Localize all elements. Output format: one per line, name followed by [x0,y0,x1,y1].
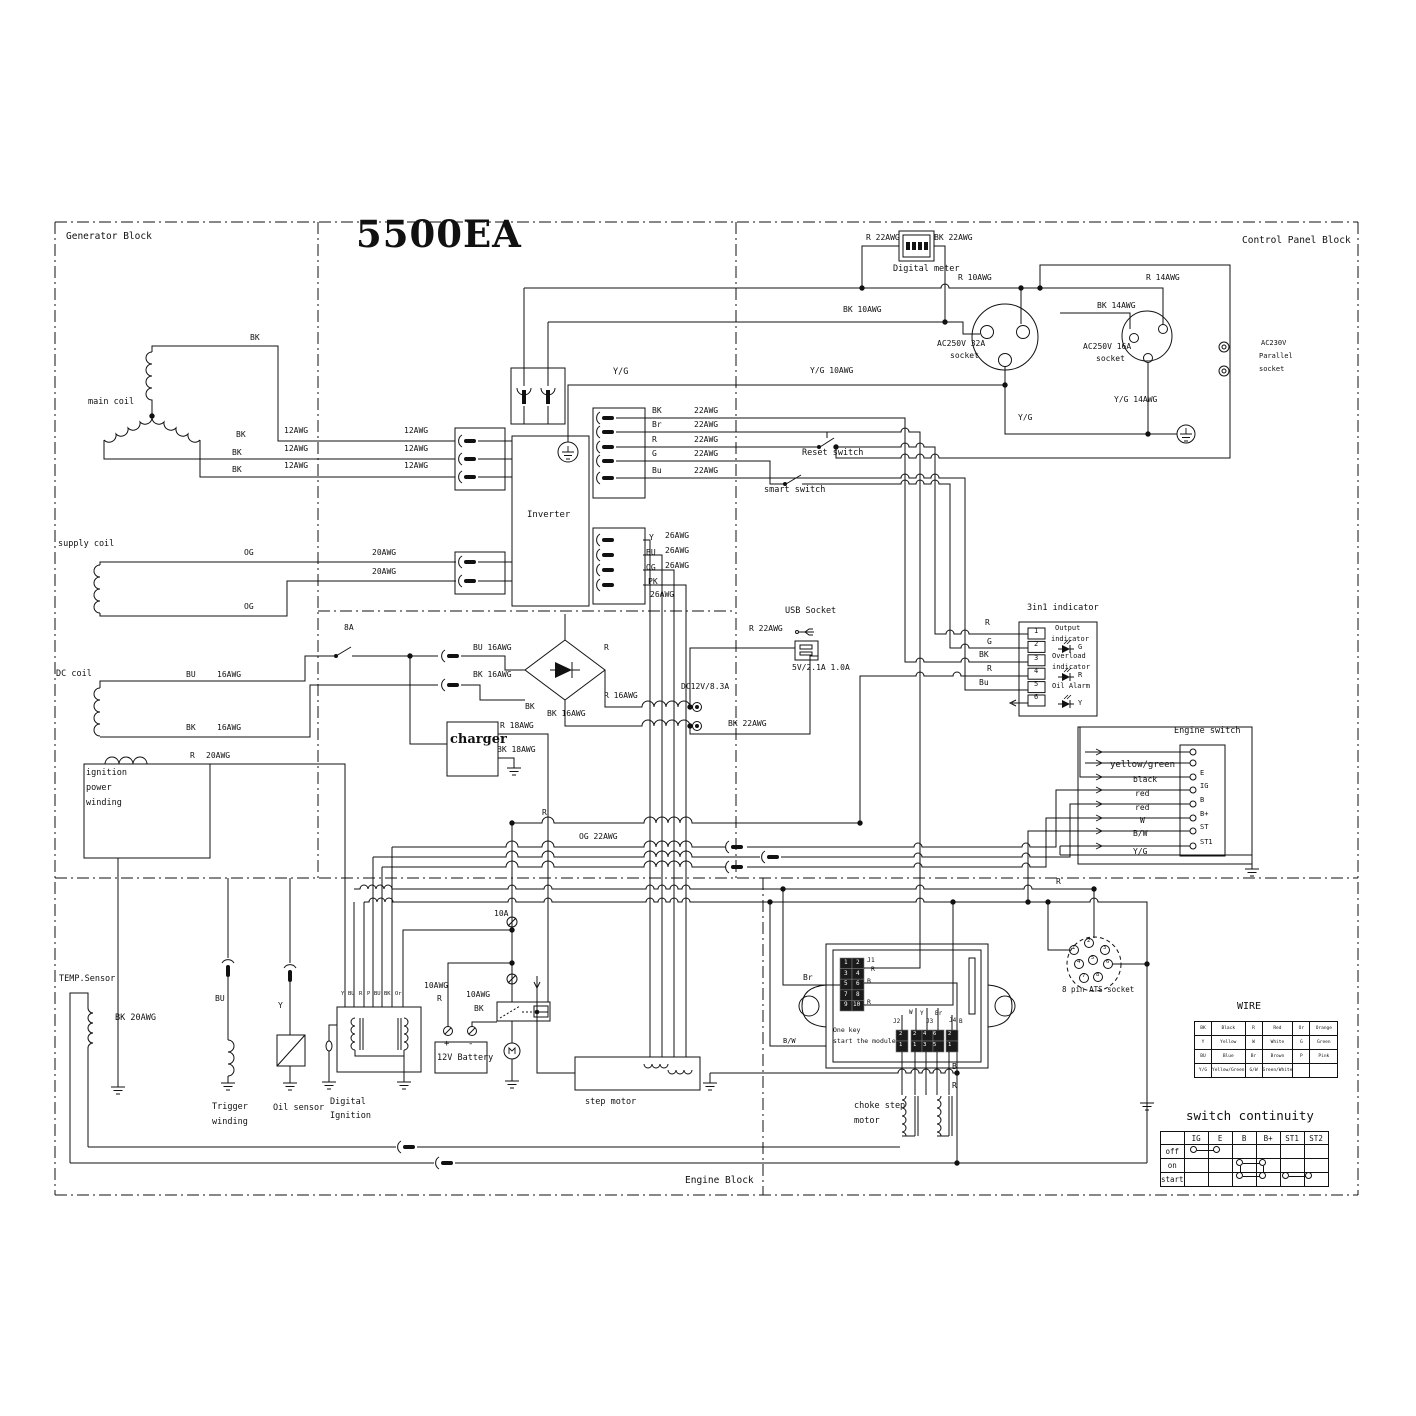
continuity-cell [1208,1173,1232,1187]
wire-label: Oil sensor [273,1104,324,1113]
wire-label: BU [646,549,656,557]
continuity-header-cell: ST2 [1304,1132,1328,1145]
wire-label: winding [86,799,122,808]
socket-16a [1122,311,1172,363]
wire-label: 10 [853,1002,860,1008]
wire-label: 12AWG [284,462,308,470]
wire-label: red [1135,804,1149,812]
wire-label: AC250V 16A [1083,343,1131,351]
wire-label: G [987,638,992,646]
wire-label: 5 [933,1043,936,1049]
wire-label: 3 [844,971,848,977]
wire-label: motor [854,1117,880,1126]
wire-label: 5 [1034,681,1038,688]
wire-label: smart switch [764,486,825,495]
socket-32a [972,304,1038,370]
wire-label: charger [450,733,507,746]
wire-label: main coil [88,398,134,407]
wire-label: Bu [979,679,989,687]
wire-label: 12AWG [284,427,308,435]
wire-label: BK [525,703,535,711]
parallel-socket [1219,342,1229,376]
wire-label: - [468,1040,473,1049]
wire-label: BK [474,1005,484,1013]
page-title: 5500EA [356,212,522,256]
wire-label: power [86,784,112,793]
continuity-cell: start [1161,1173,1185,1187]
wire-label: R [867,999,871,1006]
continuity-cell [1208,1159,1232,1173]
inverter [511,288,589,606]
wire-label: 12AWG [404,427,428,435]
wire-label: 7 [844,992,848,998]
wire-label: R [1078,672,1082,679]
continuity-cell [1304,1145,1328,1159]
wire-label: R [952,1082,957,1090]
wire-label: W [909,1010,913,1016]
wire-label: 20AWG [206,752,230,760]
wire-label: DC coil [56,670,92,679]
wire-label: Engine switch [1174,727,1241,736]
wire-label: BK [232,449,242,457]
wire-label: AC230V [1261,340,1286,347]
wire-table-cell: Y/G [1195,1064,1212,1078]
wire-label: OG [646,564,656,572]
wire-label: B [959,1019,963,1025]
wire-label: BK 14AWG [1097,302,1136,310]
wire-label: One key [833,1027,860,1034]
temp-sensor [70,993,93,1163]
wire-label: 20AWG [372,549,396,557]
wire-label: red [1135,790,1149,798]
wire-label: start the module [833,1038,896,1045]
wire-label: 22AWG [694,436,718,444]
continuity-header-cell: ST1 [1280,1132,1304,1145]
continuity-cell: off [1161,1145,1185,1159]
continuity-cell [1232,1145,1256,1159]
supply-coil [94,562,456,616]
wire-table-cell: P [1293,1050,1310,1064]
wire-label: 1 [844,960,848,966]
wire-label: R [985,619,990,627]
wire-label: 3 [923,1043,926,1049]
wire-label: 26AWG [665,562,689,570]
wire-label: 5 [844,981,848,987]
wire-label: black [1133,776,1157,784]
schematic-linework [0,0,1416,1416]
wire-label: 2 [1034,641,1038,648]
wire-table-cell: G [1293,1036,1310,1050]
wire-label: AC250V 32A [937,340,985,348]
continuity-table-body: IGEBB+ST1ST2offonstart [1161,1132,1329,1187]
wire-label: 6 [856,981,860,987]
wire-label: BK [186,724,196,732]
wire-label: 20AWG [372,568,396,576]
wire-label: 6 [933,1032,936,1038]
wire-label: R 22AWG [866,234,900,242]
wire-label: 3 [1034,655,1038,662]
wire-table-cell: Or [1293,1022,1310,1036]
continuity-vlink-line [1263,1166,1264,1173]
wire-label: 8A [344,624,354,632]
wire-label: BK 16AWG [473,671,512,679]
wire-label: OG [244,603,254,611]
digital-ignition [326,847,421,1077]
wire-label: R [437,995,442,1003]
wire-label: + [444,1040,449,1049]
wire-label: Y [649,534,654,542]
wire-label: BK [979,651,989,659]
wire-table-cell: Blue [1212,1050,1246,1064]
wire-label: 12AWG [404,462,428,470]
wire-label: choke step [854,1102,905,1111]
wire-label: socket [950,352,979,360]
wire-label: B/W [783,1038,796,1045]
wire-label: 1 [899,1043,902,1049]
wire-label: Y/G 14AWG [1114,396,1157,404]
wire-label: BK 18AWG [497,746,536,754]
wire-label: 16AWG [217,671,241,679]
wire-table-cell: White [1262,1036,1293,1050]
wire-label: G [1078,644,1082,651]
wire-label: Br [803,974,813,982]
wire-label: B/W [1133,830,1147,838]
wire-label: Reset switch [802,449,863,458]
continuity-vlink-line [1240,1166,1241,1173]
wire-label: 22AWG [694,467,718,475]
wire-label: PK [648,578,658,586]
wire-label: USB Socket [785,607,836,616]
wire-label: indicator [1051,636,1089,643]
wire-label: OG 22AWG [579,833,618,841]
wire-label: 12AWG [284,445,308,453]
wire-label: Digital meter [893,265,960,274]
wire-label: 26AWG [650,591,674,599]
engine-switch [1028,727,1252,902]
wire-label: R [604,644,609,652]
continuity-link-line [1243,1176,1260,1177]
wire-label: BK 10AWG [843,306,882,314]
wire-label: BK 22AWG [728,720,767,728]
wire-label: BK 22AWG [934,234,973,242]
step-motor [575,1057,700,1090]
wire-label: 12AWG [404,445,428,453]
wire-label: 22AWG [694,421,718,429]
wire-label: Y/G 10AWG [810,367,853,375]
reset-switch [616,432,834,449]
wire-label: ST1 [1200,839,1213,846]
continuity-cell [1280,1145,1304,1159]
continuity-contact [1213,1146,1220,1153]
wire-label: R 16AWG [604,692,638,700]
wire-label: Y [278,1002,283,1010]
continuity-cell [1184,1159,1208,1173]
wire-label: R [987,665,992,673]
continuity-cell: on [1161,1159,1185,1173]
wire-table-cell: R [1245,1022,1262,1036]
continuity-contact [1259,1172,1266,1179]
wire-label: B [952,1063,957,1071]
wire-table-body: BKBlackRRedOrOrangeYYellowWWhiteGGreenBU… [1195,1022,1338,1078]
wire-label: 3in1 indicator [1027,604,1099,613]
wire-label: 16AWG [217,724,241,732]
wiring-diagram: 5500EA Generator Block Control Panel Blo… [0,0,1416,1416]
wire-label: Y [1078,700,1082,707]
wire-table-cell: Black [1212,1022,1246,1036]
continuity-header-cell: IG [1184,1132,1208,1145]
wire-label: 4 [1034,668,1038,675]
wire-table-cell: G/W [1245,1064,1262,1078]
continuity-cell [1256,1145,1280,1159]
wire-label: winding [212,1118,248,1127]
continuity-link-line [1243,1163,1260,1164]
generator-block-label: Generator Block [66,231,152,242]
wire-label: J3 [926,1019,933,1025]
charger-box [447,722,498,776]
wire-table-cell [1310,1064,1338,1078]
wire-label: R [190,752,195,760]
wire-label: 1 [1072,946,1075,952]
wire-label: Br [935,1011,942,1017]
wire-label: socket [1096,355,1125,363]
control-panel-block-label: Control Panel Block [1242,235,1351,246]
wire-label: DC12V/8.3A [681,683,729,691]
starter-motor [504,1021,520,1076]
continuity-header-cell: E [1208,1132,1232,1145]
wire-table-cell: Red [1262,1022,1293,1036]
wire-table-title: WIRE [1237,1002,1261,1012]
wire-label: 9 [844,1002,848,1008]
wire-label: 8 pin ATS socket [1062,986,1134,994]
wire-label: Oil Alarm [1052,683,1090,690]
rectifier-bridge [525,614,605,700]
wire-label: 3 [1103,946,1106,952]
wire-label: Br [652,421,662,429]
wire-label: 2 [856,960,860,966]
wire-label: Y [920,1011,924,1017]
wire-label: 26AWG [665,547,689,555]
wire-label: 2 [948,1032,951,1038]
continuity-cell [1208,1145,1232,1159]
wire-label: Y/G [1133,848,1147,856]
wire-label: R [871,966,875,973]
wire-table-cell: Yellow/Green [1212,1064,1246,1078]
wire-label: BK [250,334,260,342]
one-key-module [770,889,1015,1163]
wire-table-cell: Yellow [1212,1036,1246,1050]
wire-label: yellow/green [1110,761,1175,770]
main-coil [104,346,455,477]
wire-label: indicator [1052,664,1090,671]
wire-label: Bu [652,467,662,475]
wire-label: R [542,809,547,817]
continuity-header-cell [1161,1132,1185,1145]
wire-label: 5V/2.1A 1.0A [792,664,850,672]
continuity-contact [1305,1172,1312,1179]
wire-label: socket [1259,366,1284,373]
wire-table-cell: W [1245,1036,1262,1050]
wire-label: Digital [330,1098,366,1107]
wire-label: BK 20AWG [115,1014,156,1023]
wire-label: 26AWG [665,532,689,540]
wire-label: 8 [856,992,860,998]
wire-label: OG [244,549,254,557]
wire-label: R [652,436,657,444]
dc-coil [94,656,438,737]
trigger-winding [222,878,234,1078]
wire-label: Or [395,992,402,998]
wire-label: 1 [948,1043,951,1049]
wire-label: 6 [1106,960,1109,966]
wire-label: BK [384,992,391,998]
panel-ground [1177,425,1195,443]
wire-label: Ignition [330,1112,371,1121]
wire-table-cell: Br [1245,1050,1262,1064]
wire-label: R 18AWG [500,722,534,730]
continuity-link-line [1197,1150,1214,1151]
wire-label: B+ [1200,811,1208,818]
wire-label: 1 [913,1043,916,1049]
wire-label: J2 [893,1019,900,1025]
wire-label: step motor [585,1098,636,1107]
wire-label: ST [1200,824,1208,831]
wire-label: 22AWG [694,450,718,458]
wire-label: BU [348,992,355,998]
wire-label: BU [215,995,225,1003]
wire-label: J4 [949,1018,956,1024]
wire-label: 6 [1034,694,1038,701]
wire-label: Y [341,992,344,998]
wire-label: BU [186,671,196,679]
wire-label: Output [1055,625,1080,632]
continuity-cell [1304,1159,1328,1173]
continuity-cell [1184,1173,1208,1187]
wire-table-cell: Green [1310,1036,1338,1050]
choke-step-motor [902,1096,952,1136]
wire-label: R [1056,878,1061,886]
wire-label: R [359,992,362,998]
wire-label: BU [374,992,381,998]
wire-label: R 14AWG [1146,274,1180,282]
wire-label: 2 [1087,939,1090,945]
wire-label: IG [1200,783,1208,790]
wire-label: P [367,992,370,998]
wire-table-cell: BU [1195,1050,1212,1064]
wire-label: Y/G [613,368,628,377]
wire-label: 4 [856,971,860,977]
engine-block-label: Engine Block [685,1175,754,1186]
wire-label: BK 16AWG [547,710,586,718]
wire-label: BK [232,466,242,474]
oil-sensor [277,878,305,1078]
wire-table-cell [1293,1064,1310,1078]
wire-label: Y/G [1018,414,1032,422]
wire-label: G [652,450,657,458]
wire-table-cell: Pink [1310,1050,1338,1064]
wire-label: 8 [1096,973,1099,979]
wire-label: 4 [923,1032,926,1038]
wire-label: 10A [494,910,508,918]
wire-label: BK [652,407,662,415]
wire-label: R 22AWG [749,625,783,633]
wire-label: 2 [913,1032,916,1038]
wire-label: BK [236,431,246,439]
continuity-cell [1280,1159,1304,1173]
wire-label: Inverter [527,511,570,520]
starter-relay [497,1002,550,1021]
wire-label: 10AWG [424,982,448,990]
wire-label: J1 [867,957,875,964]
wire-label: 10AWG [466,991,490,999]
fuse-8a-switch [335,647,439,658]
wire-table-cell: Brown [1262,1050,1293,1064]
wire-label: B [1200,797,1204,804]
wire-label: ignition [86,769,127,778]
wire-table-cell: Orange [1310,1022,1338,1036]
dc-output-terminals [693,703,702,731]
wire-label: 12V Battery [437,1054,493,1063]
block-frames [55,222,1358,1195]
wire-label: 1 [1034,628,1038,635]
wire-label: Overload [1052,653,1086,660]
wire-table-cell: BK [1195,1022,1212,1036]
wire-label: Parallel [1259,353,1293,360]
wire-label: 7 [1082,974,1085,980]
wire-label: B [867,978,871,985]
continuity-title: switch continuity [1186,1110,1314,1123]
wire-label: W [1140,817,1145,825]
continuity-link-line [1289,1176,1306,1177]
wire-label: 2 [899,1032,902,1038]
wire-label: E [1200,770,1204,777]
wire-label: 5 [1091,956,1094,962]
wire-label: 4 [1077,960,1080,966]
wire-label: Trigger [212,1103,248,1112]
wire-label: R 10AWG [958,274,992,282]
continuity-header-cell: B+ [1256,1132,1280,1145]
wire-label: BU 16AWG [473,644,512,652]
wire-label: TEMP.Sensor [59,975,115,984]
ignition-power-winding [84,757,345,1082]
wire-table-cell: Y [1195,1036,1212,1050]
bus-verticals [643,540,686,1057]
wire-label: 22AWG [694,407,718,415]
wire-table-cell: Green/White [1262,1064,1293,1078]
wire-label: supply coil [58,540,114,549]
continuity-header-cell: B [1232,1132,1256,1145]
